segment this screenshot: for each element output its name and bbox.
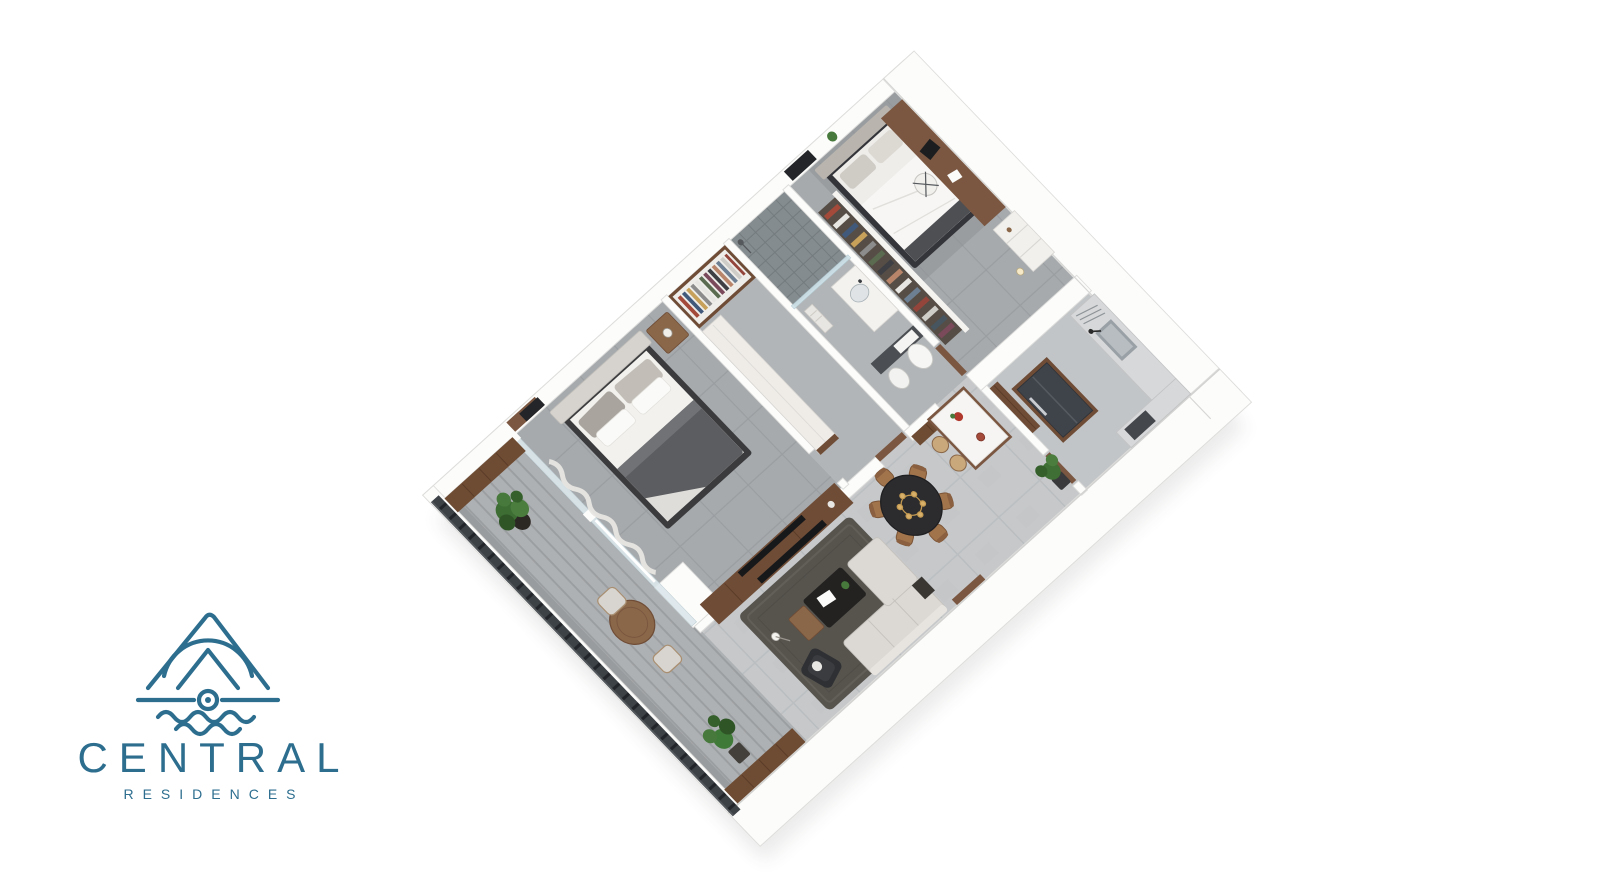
brand-icon bbox=[138, 615, 278, 734]
brand-name: CENTRAL bbox=[77, 734, 350, 781]
floorplan bbox=[423, 51, 1252, 846]
logo-wave-2 bbox=[176, 724, 240, 734]
logo-sun-arc bbox=[164, 640, 252, 676]
floorplan-render: CENTRAL RESIDENCES bbox=[0, 0, 1600, 891]
brand-tagline: RESIDENCES bbox=[123, 786, 304, 802]
logo-inner-peak bbox=[178, 650, 238, 688]
logo-door-dot bbox=[205, 697, 211, 703]
page: CENTRAL RESIDENCES bbox=[0, 0, 1600, 891]
logo-wave-1 bbox=[158, 712, 254, 722]
brand-logo: CENTRAL RESIDENCES bbox=[77, 615, 350, 802]
